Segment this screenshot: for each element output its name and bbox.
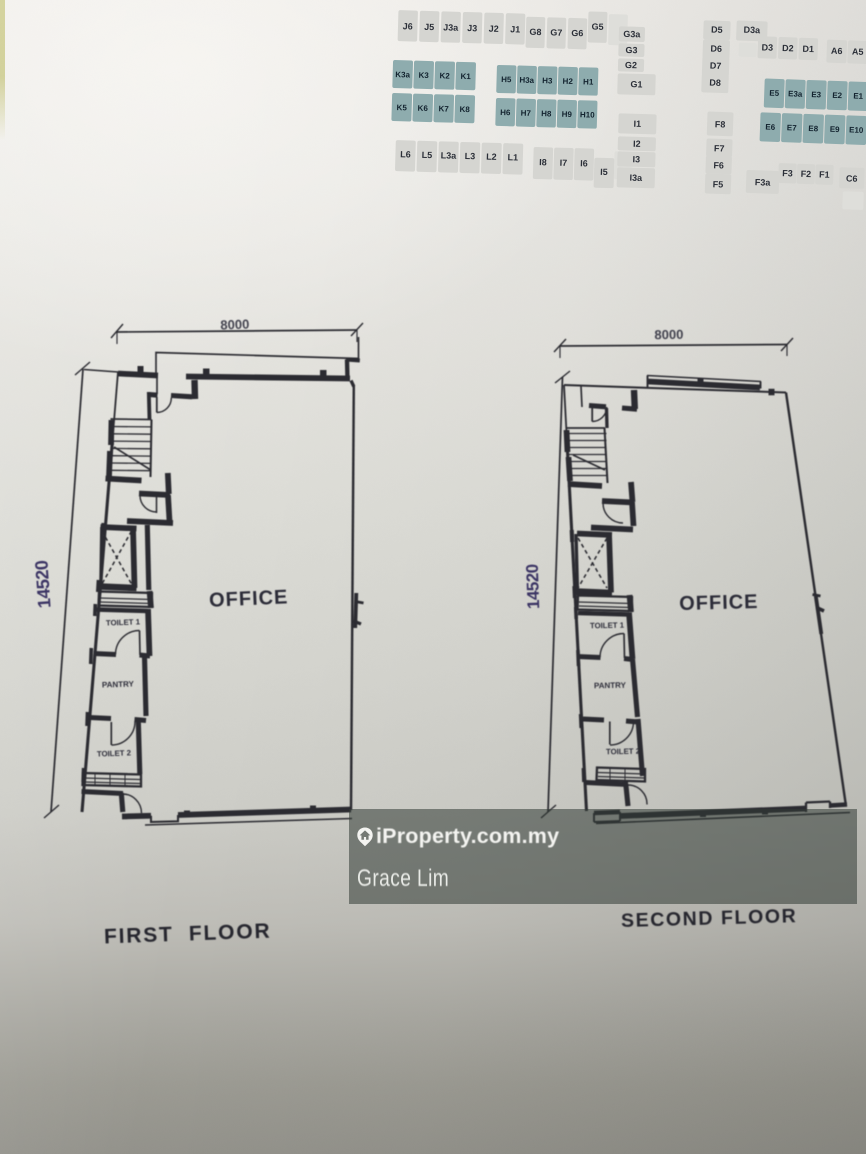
svg-text:PANTRY: PANTRY (594, 681, 627, 691)
svg-text:8000: 8000 (220, 317, 249, 333)
svg-text:TOILET 1: TOILET 1 (590, 621, 625, 631)
svg-text:OFFICE: OFFICE (209, 586, 289, 611)
svg-text:OFFICE: OFFICE (679, 591, 759, 615)
svg-text:14520: 14520 (523, 564, 544, 609)
svg-text:TOILET 2: TOILET 2 (97, 748, 132, 758)
svg-text:PANTRY: PANTRY (102, 679, 135, 689)
svg-text:TOILET 2: TOILET 2 (606, 747, 641, 757)
svg-text:8000: 8000 (654, 327, 683, 343)
svg-text:14520: 14520 (31, 560, 54, 609)
svg-text:TOILET 1: TOILET 1 (106, 617, 141, 627)
